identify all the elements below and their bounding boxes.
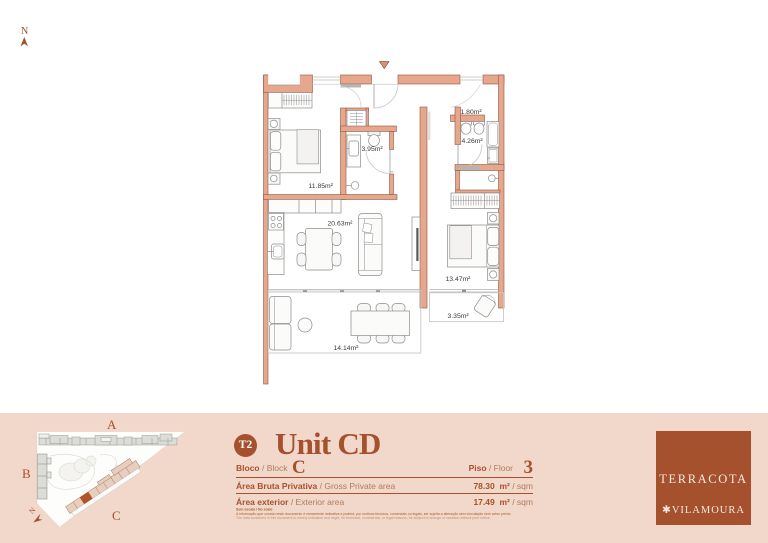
svg-text:N: N	[27, 505, 38, 515]
svg-text:C: C	[112, 508, 121, 523]
svg-text:14.14m²: 14.14m²	[334, 345, 360, 352]
svg-text:B: B	[22, 466, 31, 481]
svg-text:4.26m²: 4.26m²	[462, 138, 484, 145]
svg-text:13.47m²: 13.47m²	[446, 276, 472, 283]
svg-text:A: A	[107, 417, 117, 432]
svg-text:20.63m²: 20.63m²	[328, 221, 354, 228]
svg-text:3.95m²: 3.95m²	[362, 146, 384, 153]
svg-text:1.80m²: 1.80m²	[461, 109, 483, 116]
svg-text:3.35m²: 3.35m²	[448, 313, 470, 320]
svg-text:11.85m²: 11.85m²	[309, 183, 334, 190]
